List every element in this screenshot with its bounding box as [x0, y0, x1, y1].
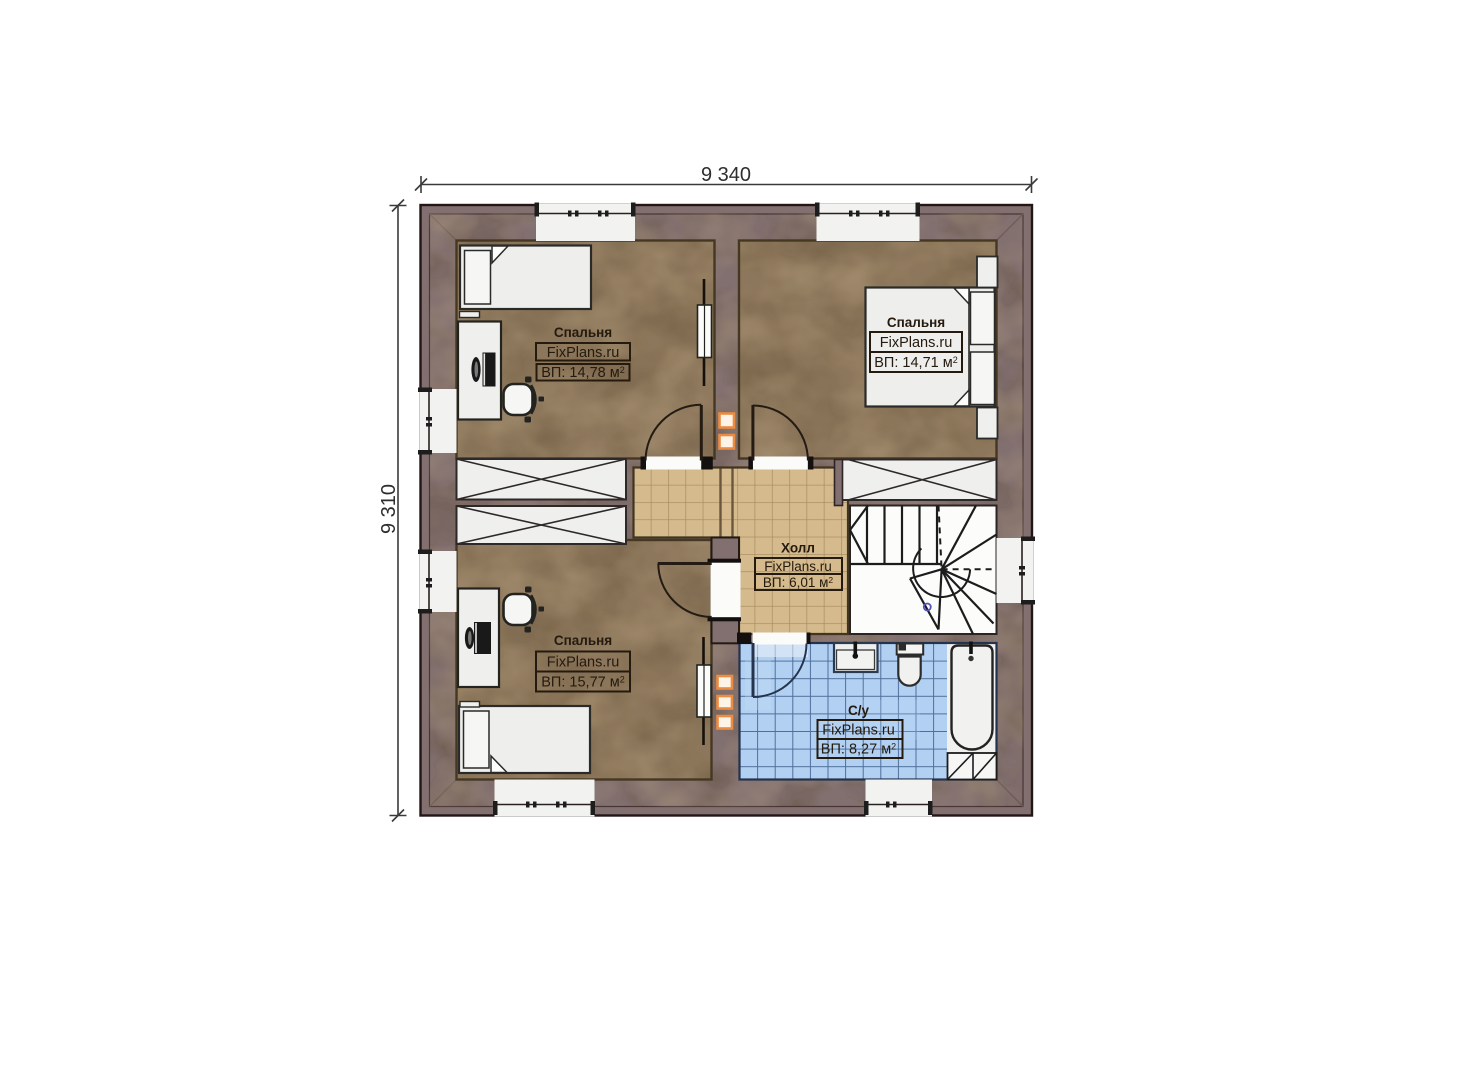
svg-text:FixPlans.ru: FixPlans.ru — [822, 723, 895, 739]
svg-text:FixPlans.ru: FixPlans.ru — [547, 655, 620, 671]
svg-text:ВП: 14,78 м2: ВП: 14,78 м2 — [541, 365, 624, 381]
svg-text:ВП: 6,01 м2: ВП: 6,01 м2 — [763, 575, 834, 590]
svg-text:FixPlans.ru: FixPlans.ru — [880, 335, 953, 351]
svg-text:Спальня: Спальня — [554, 325, 612, 340]
svg-text:Холл: Холл — [781, 541, 815, 556]
svg-text:9 340: 9 340 — [701, 164, 751, 186]
svg-text:ВП: 15,77 м2: ВП: 15,77 м2 — [541, 675, 624, 691]
svg-text:FixPlans.ru: FixPlans.ru — [764, 559, 832, 574]
svg-text:Спальня: Спальня — [887, 315, 945, 330]
svg-text:9 310: 9 310 — [378, 484, 400, 534]
svg-text:ВП: 14,71 м2: ВП: 14,71 м2 — [874, 355, 957, 371]
svg-text:Спальня: Спальня — [554, 633, 612, 648]
svg-text:С/у: С/у — [848, 703, 870, 718]
svg-text:FixPlans.ru: FixPlans.ru — [547, 345, 620, 361]
svg-text:ВП: 8,27 м2: ВП: 8,27 м2 — [821, 742, 896, 758]
